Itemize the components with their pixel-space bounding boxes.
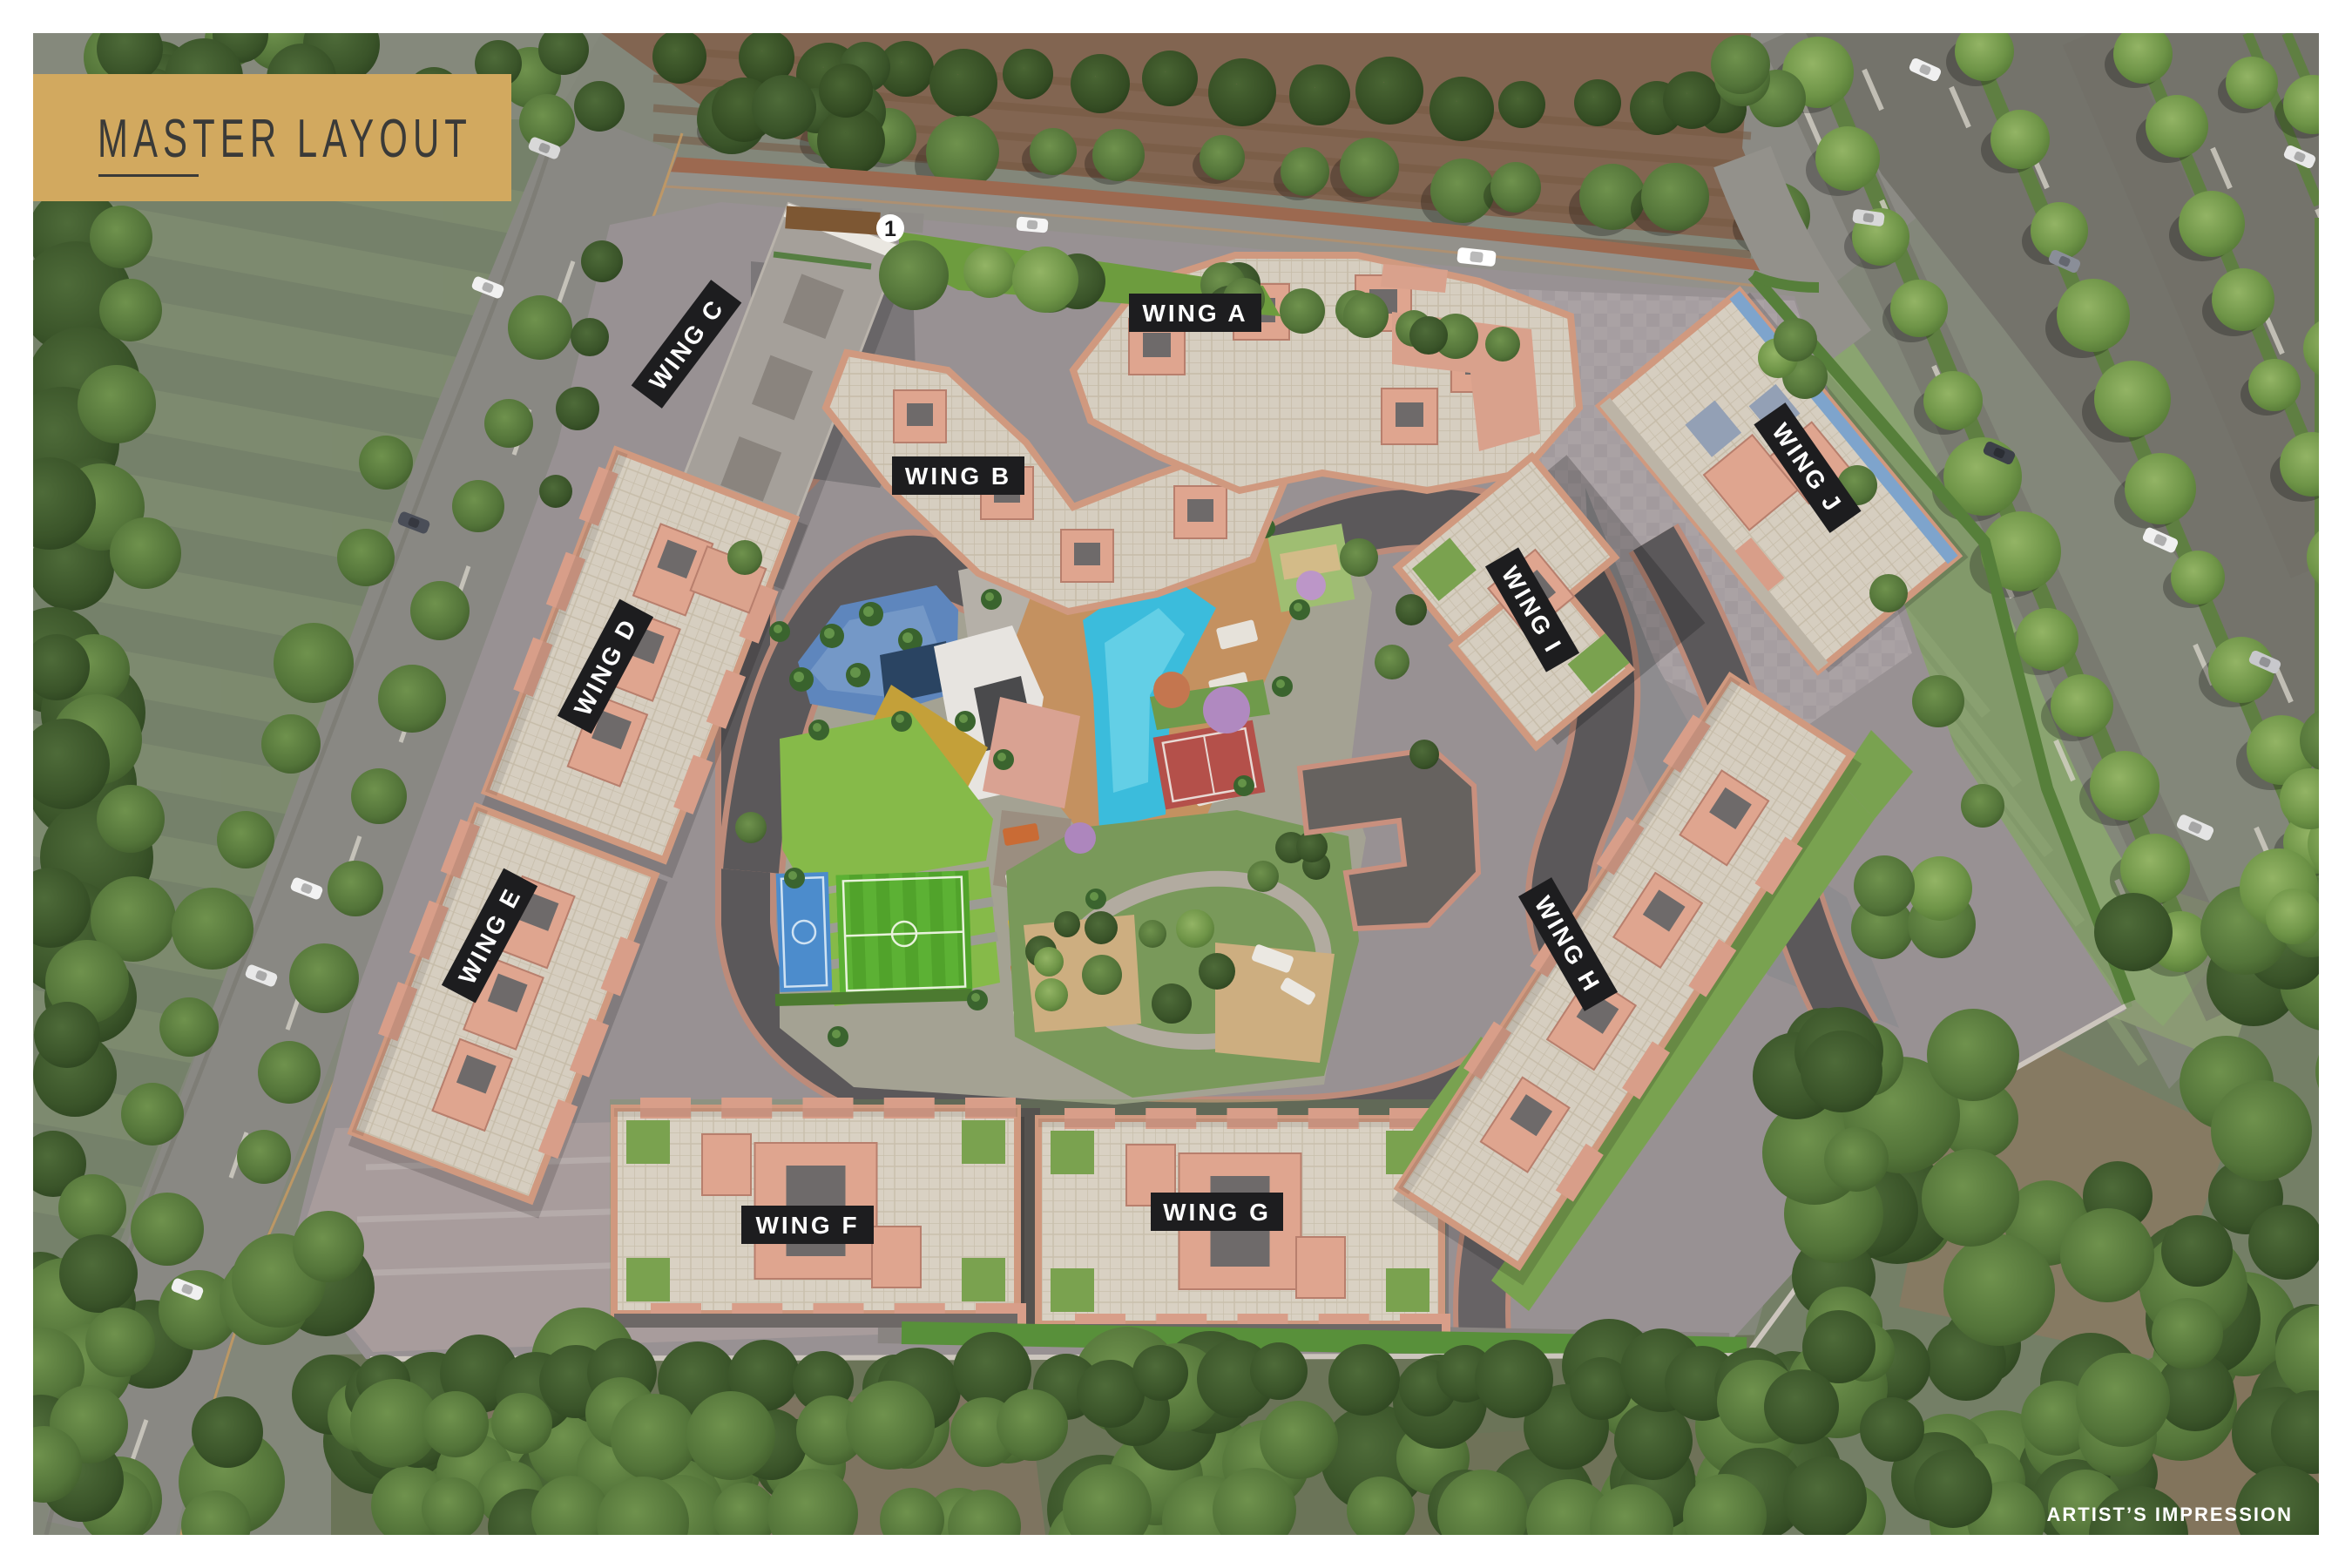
svg-text:1: 1 — [884, 217, 896, 241]
svg-text:WING F: WING F — [755, 1212, 859, 1239]
svg-text:MASTER LAYOUT: MASTER LAYOUT — [98, 109, 472, 169]
svg-text:ARTIST’S IMPRESSION: ARTIST’S IMPRESSION — [2047, 1504, 2293, 1525]
svg-text:WING B: WING B — [905, 463, 1011, 490]
svg-text:WING A: WING A — [1142, 300, 1247, 327]
svg-text:WING G: WING G — [1163, 1199, 1271, 1226]
